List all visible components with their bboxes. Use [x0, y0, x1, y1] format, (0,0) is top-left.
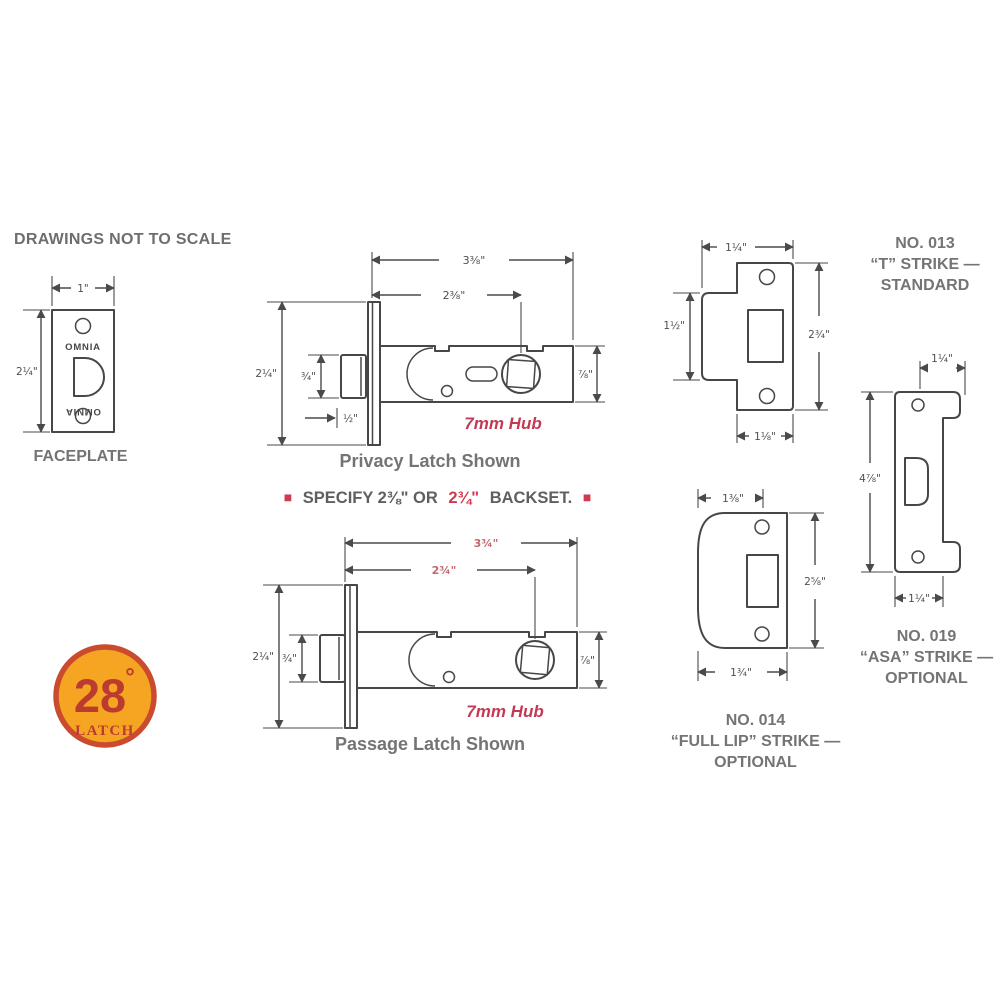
- passage-faceplate-edge: [345, 585, 357, 728]
- faceplate-drawing: 1" 2¼" OMNIA OMNIA: [15, 262, 145, 447]
- full-lip-latch-opening: [747, 555, 778, 607]
- passage-overall-label: 3¾": [474, 537, 499, 550]
- full-lip-caption-line2: “FULL LIP” STRIKE —: [638, 731, 873, 752]
- privacy-case-label: ⅞": [578, 369, 593, 381]
- passage-case-label: ⅞": [580, 655, 595, 667]
- full-lip-top-label: 1⅜": [722, 493, 744, 505]
- passage-height-dimension: 2¼": [253, 585, 343, 728]
- t-strike-caption-line1: NO. 013: [850, 233, 1000, 254]
- asa-screw-hole-bottom: [912, 551, 924, 563]
- t-strike-caption: NO. 013 “T” STRIKE — STANDARD: [850, 233, 1000, 296]
- t-strike-right-label: 2¾": [808, 329, 830, 341]
- technical-drawing-sheet: DRAWINGS NOT TO SCALE 1" 2¼" OMNIA OMNIA…: [0, 0, 1000, 1000]
- t-strike-left-dimension: 1½": [663, 293, 700, 380]
- privacy-hub-label: 7mm Hub: [464, 414, 541, 433]
- passage-latch-case: [357, 632, 577, 688]
- faceplate-screw-hole-top: [76, 319, 91, 334]
- privacy-height-label: 2¼": [255, 368, 277, 380]
- asa-bottom-dimension: 1¼": [895, 576, 943, 607]
- privacy-backset-dimension: 2⅜": [372, 289, 521, 353]
- passage-hub-label: 7mm Hub: [466, 702, 543, 721]
- latch-bolt-cutout: [74, 358, 104, 396]
- full-lip-caption-line1: NO. 014: [638, 710, 873, 731]
- privacy-backset-label: 2⅜": [443, 289, 466, 302]
- full-lip-bottom-dimension: 1¾": [698, 651, 787, 681]
- latch-angle-logo: 28 ° LATCH: [48, 642, 163, 754]
- privacy-latch-case: [380, 346, 573, 402]
- t-strike-caption-line2: “T” STRIKE —: [850, 254, 1000, 275]
- privacy-hub-square: [507, 360, 536, 389]
- note-post: BACKSET.: [490, 489, 573, 507]
- passage-overall-dimension: 3¾": [345, 537, 577, 627]
- full-lip-strike-drawing: 1⅜" 2⅝" 1¾": [645, 475, 870, 710]
- full-lip-strike-caption: NO. 014 “FULL LIP” STRIKE — OPTIONAL: [638, 710, 873, 773]
- t-strike-bottom-dimension: 1⅛": [737, 414, 793, 443]
- asa-top-label: 1¼": [931, 353, 953, 365]
- logo-number: 28: [74, 669, 126, 722]
- note-bullet-right: ■: [583, 489, 591, 505]
- faceplate-width-dimension: 1": [52, 276, 114, 306]
- sheet-title: DRAWINGS NOT TO SCALE: [14, 231, 274, 249]
- full-lip-screw-hole-bottom: [755, 627, 769, 641]
- passage-hub-square: [520, 645, 549, 674]
- t-strike-bottom-label: 1⅛": [754, 431, 776, 443]
- asa-screw-hole-top: [912, 399, 924, 411]
- faceplate-caption: FACEPLATE: [8, 446, 153, 467]
- asa-height-dimension: 4⅞": [859, 392, 893, 572]
- t-strike-top-label: 1¼": [725, 242, 747, 254]
- privacy-projection-label: ½": [343, 413, 358, 425]
- backset-note: ■ SPECIFY 2⅜" OR 2¾" BACKSET. ■: [250, 489, 625, 508]
- note-highlight: 2¾": [448, 489, 479, 507]
- asa-latch-opening: [905, 458, 928, 505]
- full-lip-top-dimension: 1⅜": [698, 489, 763, 508]
- asa-bottom-label: 1¼": [908, 593, 930, 605]
- logo-degree-symbol: °: [125, 664, 135, 691]
- privacy-projection-dimension: ½": [305, 408, 358, 428]
- brand-text-top: OMNIA: [65, 342, 101, 353]
- passage-retractor-arc: [409, 634, 435, 686]
- passage-case-dimension: ⅞": [579, 632, 607, 688]
- privacy-retractor-arc: [407, 348, 433, 400]
- full-lip-bottom-label: 1¾": [730, 667, 752, 679]
- passage-height-label: 2¼": [253, 651, 274, 663]
- asa-strike-drawing: 1¼" 4⅞" 1¼": [853, 335, 1000, 620]
- passage-backset-label: 2¾": [432, 564, 457, 577]
- note-pre: SPECIFY 2⅜" OR: [303, 489, 438, 507]
- t-strike-right-dimension: 2¾": [795, 263, 830, 410]
- t-strike-latch-opening: [748, 310, 783, 362]
- asa-caption-line1: NO. 019: [853, 626, 1000, 647]
- faceplate-width-label: 1": [77, 283, 89, 295]
- brand-text-bottom: OMNIA: [65, 406, 101, 417]
- privacy-bolt-dimension: ¾": [301, 355, 339, 398]
- full-lip-right-label: 2⅝": [804, 576, 826, 588]
- passage-latch-bolt: [320, 635, 345, 682]
- asa-top-dimension: 1¼": [920, 353, 965, 395]
- t-strike-screw-hole-bottom: [760, 389, 775, 404]
- passage-bolt-dimension: ¾": [282, 635, 318, 682]
- privacy-bolt-label: ¾": [301, 371, 316, 383]
- passage-bolt-label: ¾": [282, 653, 297, 665]
- full-lip-right-dimension: 2⅝": [789, 513, 826, 648]
- full-lip-screw-hole-top: [755, 520, 769, 534]
- privacy-overall-dimension: 3⅜": [372, 252, 573, 340]
- passage-pin-hole: [444, 672, 455, 683]
- logo-word: LATCH: [75, 723, 135, 739]
- privacy-pin-hole: [442, 386, 453, 397]
- asa-caption-line2: “ASA” STRIKE —: [853, 647, 1000, 668]
- passage-backset-dimension: 2¾": [345, 564, 535, 639]
- full-lip-caption-line3: OPTIONAL: [638, 752, 873, 773]
- t-strike-left-label: 1½": [663, 320, 685, 332]
- privacy-latch-bolt: [341, 355, 366, 398]
- faceplate-height-dimension: 2¼": [16, 310, 50, 432]
- asa-height-label: 4⅞": [859, 473, 881, 485]
- t-strike-caption-line3: STANDARD: [850, 275, 1000, 296]
- asa-strike-caption: NO. 019 “ASA” STRIKE — OPTIONAL: [853, 626, 1000, 689]
- privacy-latch-caption: Privacy Latch Shown: [295, 451, 565, 472]
- faceplate-height-label: 2¼": [16, 366, 38, 378]
- asa-caption-line3: OPTIONAL: [853, 668, 1000, 689]
- note-bullet-left: ■: [284, 489, 292, 505]
- privacy-faceplate-edge: [368, 302, 380, 445]
- t-strike-screw-hole-top: [760, 270, 775, 285]
- passage-latch-caption: Passage Latch Shown: [295, 734, 565, 755]
- t-strike-drawing: 1¼" 1½" 2¾" 1⅛": [645, 228, 880, 463]
- full-lip-outline: [698, 513, 787, 648]
- privacy-case-dimension: ⅞": [575, 346, 605, 402]
- privacy-overall-label: 3⅜": [463, 254, 486, 267]
- privacy-slot: [466, 367, 497, 381]
